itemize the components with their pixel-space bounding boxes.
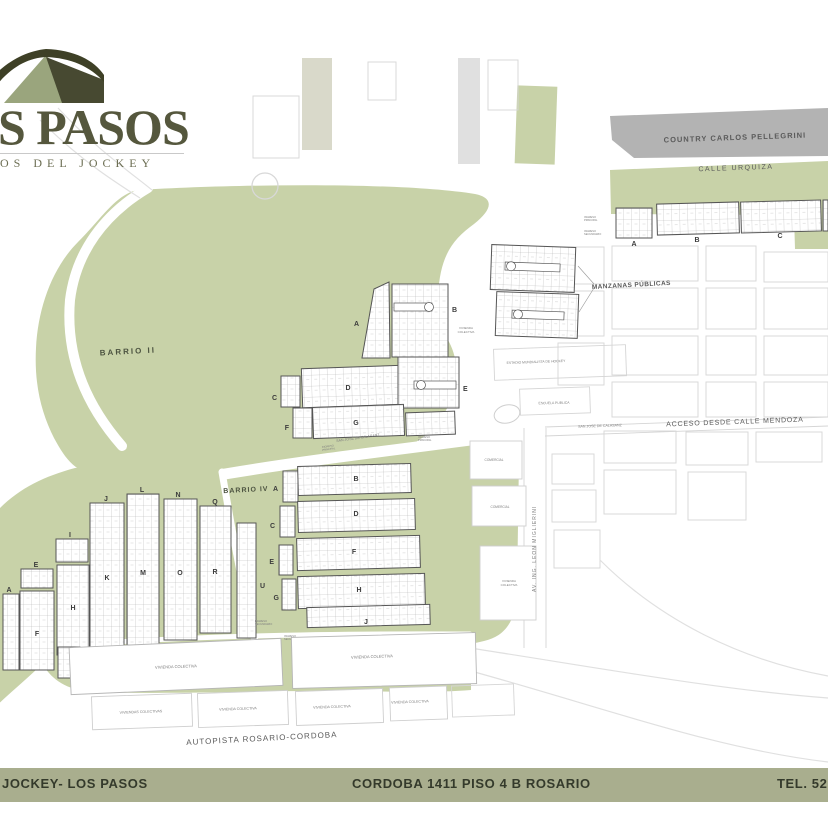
street-block bbox=[612, 246, 698, 281]
block-letter: G bbox=[274, 595, 280, 602]
street-block bbox=[612, 288, 698, 329]
block-letter: J bbox=[104, 496, 108, 503]
block-letter: U bbox=[260, 583, 265, 590]
block-letter: D bbox=[345, 385, 350, 392]
street-block bbox=[554, 530, 600, 568]
block-letter: M bbox=[140, 570, 146, 577]
street-block bbox=[688, 472, 746, 520]
block-letter: E bbox=[34, 562, 39, 569]
street-block bbox=[764, 288, 828, 329]
street-block bbox=[764, 252, 828, 282]
block-letter: A bbox=[631, 241, 636, 248]
block-letter: C bbox=[270, 523, 275, 530]
block-letter: J bbox=[364, 619, 368, 626]
leader-line bbox=[579, 288, 594, 312]
logo-rule bbox=[0, 153, 184, 154]
manzanas-publicas: MANZANAS PÚBLICAS bbox=[490, 245, 671, 339]
block-letter: L bbox=[140, 487, 145, 494]
ramp-se-3 bbox=[600, 560, 828, 676]
lot-block-b1-d-partial bbox=[823, 200, 828, 231]
leader-line bbox=[578, 266, 594, 284]
street-block bbox=[612, 336, 698, 375]
lot-block-b4-g bbox=[282, 579, 296, 610]
block-letter: D bbox=[353, 511, 358, 518]
lot-block-b2-d bbox=[301, 365, 403, 408]
lot-block-b4-a bbox=[283, 471, 298, 502]
street-block bbox=[706, 288, 756, 329]
block-letter: H bbox=[356, 587, 361, 594]
block-letter: I bbox=[69, 532, 71, 539]
lot-block-b1-b bbox=[657, 202, 740, 235]
lot-block-b2-c bbox=[281, 376, 300, 407]
street-block bbox=[552, 490, 596, 522]
footer-center-text: CORDOBA 1411 PISO 4 B ROSARIO bbox=[352, 776, 591, 791]
block-letter: A bbox=[6, 587, 11, 594]
vivienda-colectiva-label: COLECTIVA bbox=[458, 330, 475, 334]
block-letter: E bbox=[269, 559, 274, 566]
estadio-label: ESTADIO MUNDIALISTA DE HOCKEY bbox=[506, 359, 566, 365]
lot-block-b2-e2 bbox=[406, 411, 456, 436]
block-letter: K bbox=[104, 575, 109, 582]
masterplan-page: COUNTRY CARLOS PELLEGRINI CALLE URQUIZA … bbox=[0, 0, 828, 828]
lot-block-b1-a bbox=[616, 208, 652, 238]
street-block bbox=[756, 432, 822, 462]
street-block bbox=[764, 382, 828, 417]
escuela-label: ESCUELA PUBLICA bbox=[538, 401, 570, 406]
block-letter: C bbox=[777, 233, 782, 240]
street-block bbox=[706, 336, 756, 375]
block-letter: B bbox=[353, 476, 358, 483]
block-letter: A bbox=[354, 321, 359, 328]
lot-block-b4-j bbox=[307, 604, 430, 627]
street-block bbox=[686, 432, 748, 465]
culdesac-circle bbox=[425, 303, 434, 312]
block-letter: F bbox=[285, 425, 290, 432]
block-letter: O bbox=[177, 570, 183, 577]
logo-title: S PASOS bbox=[0, 98, 189, 156]
street-block bbox=[764, 336, 828, 375]
logo-roof-icon bbox=[0, 0, 300, 110]
footer-bar: JOCKEY- LOS PASOS CORDOBA 1411 PISO 4 B … bbox=[0, 768, 828, 802]
lot-block-e bbox=[21, 569, 53, 588]
logo-subtitle: OS DEL JOCKEY bbox=[0, 156, 155, 171]
street-block bbox=[706, 382, 756, 417]
block-letter: F bbox=[35, 631, 40, 638]
lot-block-b4-f bbox=[297, 535, 421, 570]
footer-left-text: JOCKEY- LOS PASOS bbox=[2, 776, 148, 791]
block-letter: H bbox=[70, 605, 75, 612]
footer-right-text: TEL. 52 bbox=[777, 776, 827, 791]
ramp-se-2 bbox=[460, 668, 828, 762]
gray-strip-top bbox=[302, 58, 332, 150]
block-letter: N bbox=[175, 492, 180, 499]
ingreso-label: SECUNDARIO bbox=[255, 622, 272, 626]
san-jose-label-2: SAN JOSE DE CALASANZ bbox=[578, 423, 623, 429]
country-block: COUNTRY CARLOS PELLEGRINI bbox=[610, 108, 828, 158]
ingreso-label: PRINCIPAL bbox=[584, 218, 598, 222]
lot-block-i bbox=[56, 539, 88, 562]
avenida-label: AV. ING. LEON MIGLIERINI bbox=[532, 506, 538, 592]
culdesac-circle bbox=[417, 381, 426, 390]
barrio-4: BARRIO IV A B C D E F G H J U INGRESO SE… bbox=[223, 464, 430, 641]
ingreso-label: PRINCIPAL bbox=[418, 438, 432, 442]
street-block bbox=[604, 470, 676, 514]
block-letter: R bbox=[212, 569, 217, 576]
street-block bbox=[612, 382, 698, 417]
block-letter: F bbox=[352, 549, 357, 556]
logo: S PASOS OS DEL JOCKEY bbox=[0, 0, 300, 190]
lot-block-b4-e bbox=[279, 545, 293, 575]
gray-strip-top2 bbox=[458, 58, 480, 164]
block-letter: B bbox=[694, 237, 699, 244]
comercial-label-1: COMERCIAL bbox=[485, 458, 504, 462]
street-block bbox=[488, 60, 518, 110]
acceso-label: ACCESO DESDE CALLE MENDOZA bbox=[666, 417, 804, 429]
ramp-se-1 bbox=[470, 648, 828, 698]
street-block bbox=[604, 431, 676, 463]
block-letter: C bbox=[272, 395, 277, 402]
green-strip-top bbox=[515, 85, 558, 164]
vivienda-colectiva-label: COLECTIVA bbox=[501, 583, 518, 587]
block-letter: G bbox=[353, 420, 359, 427]
comercial-label-2: COMERCIAL bbox=[491, 505, 510, 509]
ingreso-label: SECUNDARIO bbox=[584, 232, 601, 236]
street-block bbox=[558, 343, 604, 385]
street-block bbox=[552, 454, 594, 484]
block-letter: Q bbox=[212, 499, 218, 506]
culdesac-circle bbox=[513, 310, 522, 319]
lot-block-b2-b bbox=[392, 284, 448, 357]
street-block bbox=[368, 62, 396, 100]
roundabout bbox=[492, 402, 522, 426]
block-letter: B bbox=[452, 307, 457, 314]
block-letter: E bbox=[463, 386, 468, 393]
vivienda-colectiva-block-2 bbox=[291, 633, 476, 689]
lot-strip-a bbox=[3, 594, 19, 670]
lot-block-b2-f bbox=[293, 408, 312, 438]
block-letter: A bbox=[273, 486, 278, 493]
lot-block-b1-c bbox=[741, 200, 822, 233]
autopista-label: AUTOPISTA ROSARIO-CORDOBA bbox=[186, 730, 338, 747]
lot-block-b4-u bbox=[237, 523, 256, 638]
street-block bbox=[706, 246, 756, 281]
culdesac-circle bbox=[506, 262, 515, 271]
lot-block-b4-c bbox=[280, 506, 295, 537]
